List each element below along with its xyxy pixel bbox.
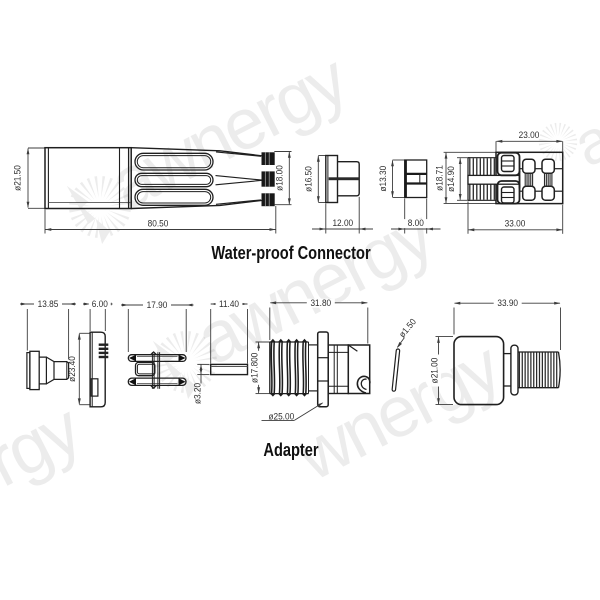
svg-text:ø21.50: ø21.50 [12,165,22,191]
svg-text:6.00: 6.00 [92,299,108,309]
svg-text:Water-proof Connector: Water-proof Connector [211,242,371,263]
svg-text:8.00: 8.00 [408,218,424,228]
svg-text:31.80: 31.80 [310,297,331,307]
svg-text:ø18.00: ø18.00 [274,165,284,191]
svg-text:ø18.71: ø18.71 [434,165,444,191]
svg-text:ø23.40: ø23.40 [66,356,76,382]
svg-text:17.90: 17.90 [147,300,168,310]
svg-text:12.00: 12.00 [332,218,353,228]
svg-text:rgy: rgy [0,388,94,502]
svg-text:ø16.50: ø16.50 [303,166,313,192]
svg-text:ø1.50: ø1.50 [397,316,419,339]
svg-text:33.00: 33.00 [505,218,526,228]
svg-text:ø3.20: ø3.20 [192,383,202,404]
svg-text:ø14.90: ø14.90 [445,166,455,192]
svg-text:ø21.00: ø21.00 [429,357,439,383]
svg-text:13.85: 13.85 [38,299,59,309]
svg-text:ø13.30: ø13.30 [378,166,388,192]
svg-text:33.90: 33.90 [497,298,518,308]
svg-text:ø17.800: ø17.800 [249,352,259,382]
svg-text:Adapter: Adapter [263,439,319,460]
svg-text:80.50: 80.50 [148,218,169,228]
svg-text:23.00: 23.00 [519,130,540,140]
svg-text:11.40: 11.40 [219,299,239,309]
